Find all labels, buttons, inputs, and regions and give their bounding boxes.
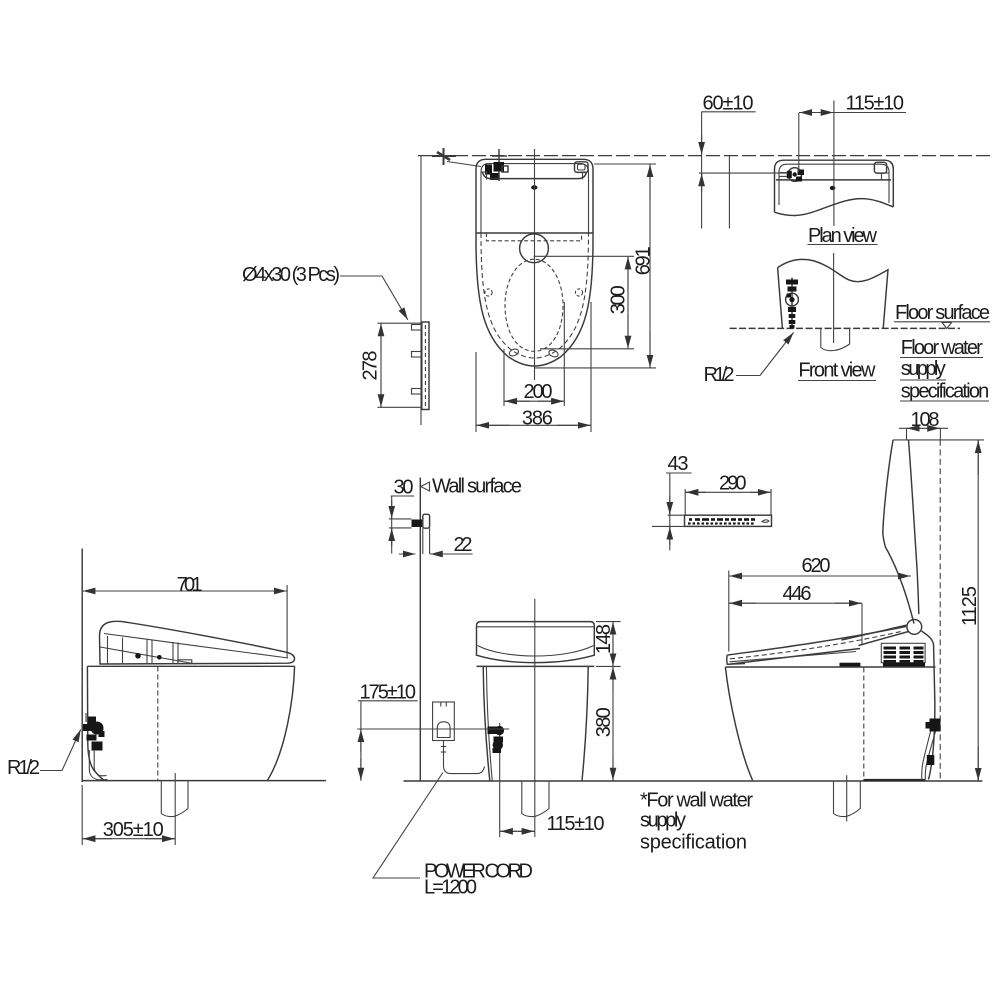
svg-text:Wall surface: Wall surface <box>432 476 522 498</box>
svg-text:115±10: 115±10 <box>547 813 605 835</box>
svg-text:L=1200: L=1200 <box>424 877 477 899</box>
svg-text:108: 108 <box>911 409 940 431</box>
svg-text:Floor water: Floor water <box>901 337 983 359</box>
svg-text:supply: supply <box>640 810 686 832</box>
svg-text:446: 446 <box>783 583 812 605</box>
svg-text:386: 386 <box>522 408 553 430</box>
svg-text:305±10: 305±10 <box>103 819 164 841</box>
svg-text:43: 43 <box>668 453 689 475</box>
svg-text:701: 701 <box>177 574 203 596</box>
svg-text:691: 691 <box>632 246 654 275</box>
svg-text:specification: specification <box>901 381 990 403</box>
svg-text:620: 620 <box>802 555 831 577</box>
svg-text:supply: supply <box>901 358 946 380</box>
svg-text:22: 22 <box>454 534 473 556</box>
svg-text:*For wall water: *For wall water <box>640 789 753 811</box>
svg-text:Floor surface: Floor surface <box>895 302 990 324</box>
svg-text:148: 148 <box>593 624 615 654</box>
svg-text:Front view: Front view <box>798 360 876 382</box>
svg-text:175±10: 175±10 <box>360 682 417 704</box>
svg-text:specification: specification <box>640 832 747 854</box>
svg-text:R1/2: R1/2 <box>7 757 40 779</box>
svg-text:30: 30 <box>394 477 414 499</box>
svg-text:115±10: 115±10 <box>846 93 905 115</box>
svg-text:278: 278 <box>360 351 382 381</box>
svg-text:1125: 1125 <box>959 586 981 626</box>
svg-text:290: 290 <box>719 472 747 494</box>
svg-text:200: 200 <box>524 381 553 403</box>
svg-text:300: 300 <box>607 285 629 314</box>
svg-text:Ø4x30 (3 Pcs): Ø4x30 (3 Pcs) <box>242 264 340 286</box>
svg-text:R1/2: R1/2 <box>704 364 735 386</box>
svg-text:380: 380 <box>593 707 615 737</box>
svg-text:Plan view: Plan view <box>808 225 878 247</box>
